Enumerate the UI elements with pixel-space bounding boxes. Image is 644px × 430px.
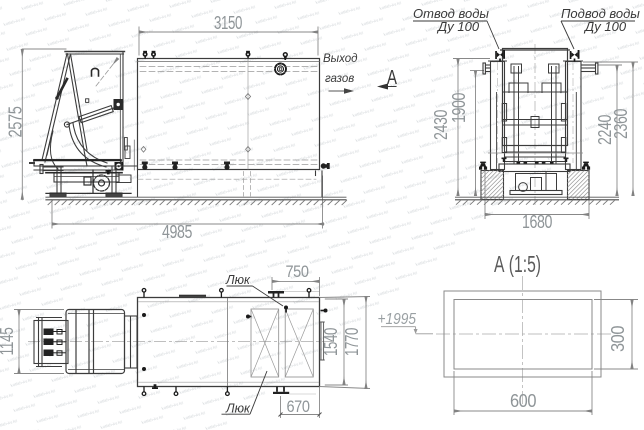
- svg-text:kotlah-kv.kz: kotlah-kv.kz: [355, 132, 378, 143]
- svg-text:kotlah-kv.kz: kotlah-kv.kz: [276, 167, 299, 178]
- svg-text:kotlah-kv.kz: kotlah-kv.kz: [74, 383, 97, 394]
- svg-text:kotlah-kv.kz: kotlah-kv.kz: [427, 190, 450, 201]
- svg-text:kotlah-kv.kz: kotlah-kv.kz: [203, 252, 226, 263]
- svg-text:kotlah-kv.kz: kotlah-kv.kz: [339, 316, 362, 327]
- svg-text:kotlah-kv.kz: kotlah-kv.kz: [195, 34, 218, 45]
- svg-text:kotlah-kv.kz: kotlah-kv.kz: [36, 413, 59, 424]
- svg-text:kotlah-kv.kz: kotlah-kv.kz: [0, 224, 12, 235]
- svg-text:kotlah-kv.kz: kotlah-kv.kz: [59, 424, 82, 430]
- svg-text:kotlah-kv.kz: kotlah-kv.kz: [131, 28, 154, 39]
- svg-text:kotlah-kv.kz: kotlah-kv.kz: [0, 418, 18, 429]
- svg-text:kotlah-kv.kz: kotlah-kv.kz: [188, 293, 211, 304]
- svg-text:kotlah-kv.kz: kotlah-kv.kz: [285, 76, 308, 87]
- svg-text:kotlah-kv.kz: kotlah-kv.kz: [57, 256, 80, 267]
- svg-text:kotlah-kv.kz: kotlah-kv.kz: [155, 206, 178, 217]
- svg-text:kotlah-kv.kz: kotlah-kv.kz: [0, 316, 4, 327]
- svg-text:kotlah-kv.kz: kotlah-kv.kz: [100, 419, 123, 430]
- svg-text:kotlah-kv.kz: kotlah-kv.kz: [309, 254, 332, 265]
- svg-text:kotlah-kv.kz: kotlah-kv.kz: [509, 180, 532, 191]
- svg-text:kotlah-kv.kz: kotlah-kv.kz: [47, 36, 70, 47]
- svg-text:kotlah-kv.kz: kotlah-kv.kz: [217, 44, 240, 55]
- svg-text:kotlah-kv.kz: kotlah-kv.kz: [195, 344, 218, 355]
- svg-text:kotlah-kv.kz: kotlah-kv.kz: [97, 394, 120, 405]
- svg-text:kotlah-kv.kz: kotlah-kv.kz: [243, 390, 266, 401]
- svg-text:kotlah-kv.kz: kotlah-kv.kz: [160, 89, 183, 100]
- svg-text:kotlah-kv.kz: kotlah-kv.kz: [265, 90, 288, 101]
- svg-text:kotlah-kv.kz: kotlah-kv.kz: [352, 107, 375, 118]
- svg-text:kotlah-kv.kz: kotlah-kv.kz: [568, 0, 591, 4]
- svg-text:kotlah-kv.kz: kotlah-kv.kz: [181, 242, 204, 253]
- svg-text:kotlah-kv.kz: kotlah-kv.kz: [305, 228, 328, 239]
- svg-text:kotlah-kv.kz: kotlah-kv.kz: [214, 329, 237, 340]
- svg-text:kotlah-kv.kz: kotlah-kv.kz: [397, 128, 420, 139]
- svg-text:kotlah-kv.kz: kotlah-kv.kz: [357, 0, 380, 1]
- svg-text:kotlah-kv.kz: kotlah-kv.kz: [143, 272, 166, 283]
- svg-text:1540: 1540: [321, 328, 341, 356]
- svg-text:kotlah-kv.kz: kotlah-kv.kz: [281, 360, 304, 371]
- svg-text:2430: 2430: [431, 110, 451, 140]
- svg-text:kotlah-kv.kz: kotlah-kv.kz: [381, 168, 404, 179]
- svg-text:kotlah-kv.kz: kotlah-kv.kz: [167, 140, 190, 151]
- svg-text:kotlah-kv.kz: kotlah-kv.kz: [295, 152, 318, 163]
- svg-text:1900: 1900: [449, 93, 469, 123]
- svg-text:kotlah-kv.kz: kotlah-kv.kz: [453, 226, 476, 237]
- svg-text:kotlah-kv.kz: kotlah-kv.kz: [89, 342, 112, 353]
- svg-text:kotlah-kv.kz: kotlah-kv.kz: [165, 282, 188, 293]
- svg-text:kotlah-kv.kz: kotlah-kv.kz: [480, 119, 503, 130]
- svg-text:3150: 3150: [214, 13, 242, 33]
- svg-text:kotlah-kv.kz: kotlah-kv.kz: [0, 198, 8, 209]
- svg-text:kotlah-kv.kz: kotlah-kv.kz: [274, 0, 297, 10]
- svg-text:kotlah-kv.kz: kotlah-kv.kz: [299, 178, 322, 189]
- svg-text:kotlah-kv.kz: kotlah-kv.kz: [29, 52, 52, 63]
- svg-text:kotlah-kv.kz: kotlah-kv.kz: [238, 197, 261, 208]
- svg-text:kotlah-kv.kz: kotlah-kv.kz: [366, 209, 389, 220]
- svg-text:kotlah-kv.kz: kotlah-kv.kz: [393, 102, 416, 113]
- svg-text:kotlah-kv.kz: kotlah-kv.kz: [151, 180, 174, 191]
- svg-text:kotlah-kv.kz: kotlah-kv.kz: [115, 68, 138, 79]
- svg-text:kotlah-kv.kz: kotlah-kv.kz: [0, 56, 10, 67]
- svg-text:kotlah-kv.kz: kotlah-kv.kz: [405, 36, 428, 47]
- svg-text:1770: 1770: [342, 328, 362, 356]
- svg-text:kotlah-kv.kz: kotlah-kv.kz: [205, 110, 228, 121]
- svg-text:kotlah-kv.kz: kotlah-kv.kz: [113, 210, 136, 221]
- svg-text:kotlah-kv.kz: kotlah-kv.kz: [137, 78, 160, 89]
- svg-text:kotlah-kv.kz: kotlah-kv.kz: [413, 88, 436, 99]
- svg-text:kotlah-kv.kz: kotlah-kv.kz: [369, 234, 392, 245]
- svg-text:kotlah-kv.kz: kotlah-kv.kz: [245, 248, 268, 259]
- svg-text:kotlah-kv.kz: kotlah-kv.kz: [157, 64, 180, 75]
- svg-text:kotlah-kv.kz: kotlah-kv.kz: [138, 389, 161, 400]
- svg-text:kotlah-kv.kz: kotlah-kv.kz: [91, 200, 114, 211]
- svg-text:kotlah-kv.kz: kotlah-kv.kz: [392, 245, 415, 256]
- svg-text:kotlah-kv.kz: kotlah-kv.kz: [377, 286, 400, 297]
- svg-text:kotlah-kv.kz: kotlah-kv.kz: [25, 26, 48, 37]
- svg-text:kotlah-kv.kz: kotlah-kv.kz: [185, 268, 208, 279]
- svg-text:kotlah-kv.kz: kotlah-kv.kz: [315, 0, 338, 5]
- svg-text:kotlah-kv.kz: kotlah-kv.kz: [199, 370, 222, 381]
- svg-text:kotlah-kv.kz: kotlah-kv.kz: [149, 12, 172, 23]
- svg-text:kotlah-kv.kz: kotlah-kv.kz: [357, 300, 380, 311]
- svg-text:kotlah-kv.kz: kotlah-kv.kz: [186, 125, 209, 136]
- svg-text:kotlah-kv.kz: kotlah-kv.kz: [227, 120, 250, 131]
- svg-text:kotlah-kv.kz: kotlah-kv.kz: [297, 10, 320, 21]
- svg-text:kotlah-kv.kz: kotlah-kv.kz: [212, 161, 235, 172]
- svg-text:kotlah-kv.kz: kotlah-kv.kz: [89, 32, 112, 43]
- svg-text:kotlah-kv.kz: kotlah-kv.kz: [20, 143, 43, 154]
- svg-text:kotlah-kv.kz: kotlah-kv.kz: [468, 185, 491, 196]
- svg-text:300: 300: [608, 326, 628, 352]
- svg-text:kotlah-kv.kz: kotlah-kv.kz: [404, 179, 427, 190]
- svg-text:kotlah-kv.kz: kotlah-kv.kz: [291, 126, 314, 137]
- svg-text:kotlah-kv.kz: kotlah-kv.kz: [37, 270, 60, 281]
- svg-text:kotlah-kv.kz: kotlah-kv.kz: [115, 378, 138, 389]
- svg-text:kotlah-kv.kz: kotlah-kv.kz: [0, 0, 22, 1]
- svg-text:kotlah-kv.kz: kotlah-kv.kz: [31, 220, 54, 231]
- svg-text:kotlah-kv.kz: kotlah-kv.kz: [351, 250, 374, 261]
- svg-text:kotlah-kv.kz: kotlah-kv.kz: [0, 148, 2, 159]
- svg-text:kotlah-kv.kz: kotlah-kv.kz: [210, 0, 233, 4]
- svg-text:kotlah-kv.kz: kotlah-kv.kz: [325, 214, 348, 225]
- svg-text:kotlah-kv.kz: kotlah-kv.kz: [122, 119, 145, 130]
- svg-text:kotlah-kv.kz: kotlah-kv.kz: [175, 48, 198, 59]
- svg-text:kotlah-kv.kz: kotlah-kv.kz: [433, 240, 456, 251]
- svg-text:kotlah-kv.kz: kotlah-kv.kz: [359, 158, 382, 169]
- svg-text:kotlah-kv.kz: kotlah-kv.kz: [247, 106, 270, 117]
- svg-text:kotlah-kv.kz: kotlah-kv.kz: [471, 210, 494, 221]
- svg-text:2360: 2360: [611, 109, 631, 139]
- svg-text:kotlah-kv.kz: kotlah-kv.kz: [617, 40, 640, 51]
- svg-text:kotlah-kv.kz: kotlah-kv.kz: [559, 84, 582, 95]
- svg-text:kotlah-kv.kz: kotlah-kv.kz: [157, 374, 180, 385]
- svg-text:kotlah-kv.kz: kotlah-kv.kz: [200, 227, 223, 238]
- svg-text:1145: 1145: [0, 327, 17, 355]
- svg-text:kotlah-kv.kz: kotlah-kv.kz: [183, 100, 206, 111]
- svg-text:kotlah-kv.kz: kotlah-kv.kz: [409, 62, 432, 73]
- svg-text:kotlah-kv.kz: kotlah-kv.kz: [507, 12, 530, 23]
- svg-text:kotlah-kv.kz: kotlah-kv.kz: [261, 208, 284, 219]
- svg-text:kotlah-kv.kz: kotlah-kv.kz: [98, 251, 121, 262]
- svg-text:kotlah-kv.kz: kotlah-kv.kz: [141, 414, 164, 425]
- svg-text:kotlah-kv.kz: kotlah-kv.kz: [250, 131, 273, 142]
- svg-text:kotlah-kv.kz: kotlah-kv.kz: [544, 125, 567, 136]
- svg-text:kotlah-kv.kz: kotlah-kv.kz: [373, 260, 396, 271]
- svg-text:kotlah-kv.kz: kotlah-kv.kz: [63, 0, 86, 7]
- svg-text:kotlah-kv.kz: kotlah-kv.kz: [307, 86, 330, 97]
- svg-text:kotlah-kv.kz: kotlah-kv.kz: [239, 54, 262, 65]
- svg-text:kotlah-kv.kz: kotlah-kv.kz: [469, 42, 492, 53]
- svg-text:kotlah-kv.kz: kotlah-kv.kz: [341, 30, 364, 41]
- svg-text:kotlah-kv.kz: kotlah-kv.kz: [518, 89, 541, 100]
- svg-text:kotlah-kv.kz: kotlah-kv.kz: [58, 113, 81, 124]
- svg-text:kotlah-kv.kz: kotlah-kv.kz: [428, 47, 451, 58]
- svg-text:kotlah-kv.kz: kotlah-kv.kz: [1, 158, 24, 169]
- svg-text:kotlah-kv.kz: kotlah-kv.kz: [541, 100, 564, 111]
- svg-text:1680: 1680: [522, 212, 552, 232]
- svg-text:kotlah-kv.kz: kotlah-kv.kz: [0, 392, 14, 403]
- svg-text:kotlah-kv.kz: kotlah-kv.kz: [135, 364, 158, 375]
- svg-text:kotlah-kv.kz: kotlah-kv.kz: [231, 146, 254, 157]
- svg-text:kotlah-kv.kz: kotlah-kv.kz: [193, 176, 216, 187]
- svg-text:kotlah-kv.kz: kotlah-kv.kz: [264, 233, 287, 244]
- svg-text:kotlah-kv.kz: kotlah-kv.kz: [93, 58, 116, 69]
- svg-text:kotlah-kv.kz: kotlah-kv.kz: [10, 377, 33, 388]
- svg-text:kotlah-kv.kz: kotlah-kv.kz: [21, 0, 44, 11]
- svg-text:kotlah-kv.kz: kotlah-kv.kz: [442, 149, 465, 160]
- svg-text:kotlah-kv.kz: kotlah-kv.kz: [461, 134, 484, 145]
- svg-text:kotlah-kv.kz: kotlah-kv.kz: [273, 142, 296, 153]
- svg-text:kotlah-kv.kz: kotlah-kv.kz: [257, 182, 280, 193]
- svg-text:kotlah-kv.kz: kotlah-kv.kz: [347, 224, 370, 235]
- svg-text:kotlah-kv.kz: kotlah-kv.kz: [379, 0, 402, 11]
- svg-text:kotlah-kv.kz: kotlah-kv.kz: [85, 6, 108, 17]
- svg-text:kotlah-kv.kz: kotlah-kv.kz: [55, 398, 78, 409]
- svg-text:kotlah-kv.kz: kotlah-kv.kz: [153, 348, 176, 359]
- svg-text:kotlah-kv.kz: kotlah-kv.kz: [252, 299, 275, 310]
- svg-text:kotlah-kv.kz: kotlah-kv.kz: [340, 173, 363, 184]
- svg-text:kotlah-kv.kz: kotlah-kv.kz: [109, 328, 132, 339]
- svg-text:kotlah-kv.kz: kotlah-kv.kz: [431, 72, 454, 83]
- svg-text:kotlah-kv.kz: kotlah-kv.kz: [9, 66, 32, 77]
- svg-text:kotlah-kv.kz: kotlah-kv.kz: [243, 80, 266, 91]
- svg-text:kotlah-kv.kz: kotlah-kv.kz: [567, 136, 590, 147]
- svg-text:kotlah-kv.kz: kotlah-kv.kz: [582, 95, 605, 106]
- svg-text:kotlah-kv.kz: kotlah-kv.kz: [139, 246, 162, 257]
- svg-text:kotlah-kv.kz: kotlah-kv.kz: [217, 354, 240, 365]
- svg-text:kotlah-kv.kz: kotlah-kv.kz: [179, 384, 202, 395]
- svg-text:kotlah-kv.kz: kotlah-kv.kz: [223, 238, 246, 249]
- svg-text:kotlah-kv.kz: kotlah-kv.kz: [169, 308, 192, 319]
- svg-text:kotlah-kv.kz: kotlah-kv.kz: [189, 150, 212, 161]
- svg-text:kotlah-kv.kz: kotlah-kv.kz: [0, 173, 5, 184]
- svg-text:А (1:5): А (1:5): [494, 251, 541, 277]
- svg-text:kotlah-kv.kz: kotlah-kv.kz: [205, 420, 228, 430]
- svg-text:kotlah-kv.kz: kotlah-kv.kz: [387, 52, 410, 63]
- svg-text:kotlah-kv.kz: kotlah-kv.kz: [511, 38, 534, 49]
- svg-text:670: 670: [287, 397, 310, 416]
- svg-text:kotlah-kv.kz: kotlah-kv.kz: [354, 275, 377, 286]
- svg-text:kotlah-kv.kz: kotlah-kv.kz: [277, 24, 300, 35]
- svg-text:kotlah-kv.kz: kotlah-kv.kz: [6, 41, 29, 52]
- svg-text:kotlah-kv.kz: kotlah-kv.kz: [635, 24, 644, 35]
- svg-text:kotlah-kv.kz: kotlah-kv.kz: [41, 296, 64, 307]
- svg-text:kotlah-kv.kz: kotlah-kv.kz: [219, 212, 242, 223]
- svg-text:kotlah-kv.kz: kotlah-kv.kz: [269, 116, 292, 127]
- svg-text:kotlah-kv.kz: kotlah-kv.kz: [333, 122, 356, 133]
- svg-text:kotlah-kv.kz: kotlah-kv.kz: [411, 230, 434, 241]
- svg-text:kotlah-kv.kz: kotlah-kv.kz: [364, 41, 387, 52]
- svg-text:kotlah-kv.kz: kotlah-kv.kz: [385, 194, 408, 205]
- svg-text:kotlah-kv.kz: kotlah-kv.kz: [401, 154, 424, 165]
- svg-text:kotlah-kv.kz: kotlah-kv.kz: [67, 22, 90, 33]
- svg-text:Люк: Люк: [225, 402, 251, 416]
- svg-text:kotlah-kv.kz: kotlah-kv.kz: [150, 323, 173, 334]
- svg-text:kotlah-kv.kz: kotlah-kv.kz: [423, 164, 446, 175]
- svg-text:600: 600: [510, 391, 536, 411]
- svg-text:kotlah-kv.kz: kotlah-kv.kz: [371, 92, 394, 103]
- svg-text:kotlah-kv.kz: kotlah-kv.kz: [329, 96, 352, 107]
- svg-text:kotlah-kv.kz: kotlah-kv.kz: [169, 0, 192, 9]
- svg-text:kotlah-kv.kz: kotlah-kv.kz: [255, 14, 278, 25]
- svg-text:kotlah-kv.kz: kotlah-kv.kz: [34, 245, 57, 256]
- svg-text:+1995: +1995: [378, 311, 417, 328]
- svg-text:kotlah-kv.kz: kotlah-kv.kz: [33, 388, 56, 399]
- svg-text:kotlah-kv.kz: kotlah-kv.kz: [0, 250, 16, 261]
- svg-text:Люк: Люк: [225, 273, 251, 287]
- svg-text:kotlah-kv.kz: kotlah-kv.kz: [0, 275, 19, 286]
- svg-text:kotlah-kv.kz: kotlah-kv.kz: [375, 118, 398, 129]
- svg-text:kotlah-kv.kz: kotlah-kv.kz: [597, 54, 620, 65]
- svg-text:kotlah-kv.kz: kotlah-kv.kz: [215, 186, 238, 197]
- svg-text:kotlah-kv.kz: kotlah-kv.kz: [553, 34, 576, 45]
- svg-text:kotlah-kv.kz: kotlah-kv.kz: [0, 366, 10, 377]
- svg-text:kotlah-kv.kz: kotlah-kv.kz: [77, 408, 100, 419]
- svg-text:kotlah-kv.kz: kotlah-kv.kz: [253, 156, 276, 167]
- svg-text:kotlah-kv.kz: kotlah-kv.kz: [11, 234, 34, 245]
- svg-text:kotlah-kv.kz: kotlah-kv.kz: [337, 148, 360, 159]
- svg-text:kotlah-kv.kz: kotlah-kv.kz: [263, 376, 286, 387]
- svg-text:kotlah-kv.kz: kotlah-kv.kz: [73, 72, 96, 83]
- svg-text:kotlah-kv.kz: kotlah-kv.kz: [430, 215, 453, 226]
- svg-text:kotlah-kv.kz: kotlah-kv.kz: [145, 130, 168, 141]
- svg-text:kotlah-kv.kz: kotlah-kv.kz: [119, 404, 142, 415]
- svg-text:kotlah-kv.kz: kotlah-kv.kz: [395, 270, 418, 281]
- svg-text:kotlah-kv.kz: kotlah-kv.kz: [179, 74, 202, 85]
- svg-text:kotlah-kv.kz: kotlah-kv.kz: [211, 304, 234, 315]
- svg-text:kotlah-kv.kz: kotlah-kv.kz: [463, 0, 486, 3]
- svg-text:kotlah-kv.kz: kotlah-kv.kz: [283, 218, 306, 229]
- svg-text:kotlah-kv.kz: kotlah-kv.kz: [79, 266, 102, 277]
- svg-text:kotlah-kv.kz: kotlah-kv.kz: [162, 257, 185, 268]
- svg-text:kotlah-kv.kz: kotlah-kv.kz: [198, 59, 221, 70]
- svg-text:kotlah-kv.kz: kotlah-kv.kz: [415, 256, 438, 267]
- svg-text:kotlah-kv.kz: kotlah-kv.kz: [147, 298, 170, 309]
- svg-text:kotlah-kv.kz: kotlah-kv.kz: [105, 0, 128, 3]
- svg-text:kotlah-kv.kz: kotlah-kv.kz: [361, 16, 384, 27]
- svg-text:750: 750: [286, 262, 309, 281]
- svg-text:2575: 2575: [6, 106, 26, 137]
- svg-text:kotlah-kv.kz: kotlah-kv.kz: [287, 244, 310, 255]
- svg-text:газов: газов: [325, 73, 354, 85]
- svg-text:kotlah-kv.kz: kotlah-kv.kz: [5, 184, 28, 195]
- svg-text:kotlah-kv.kz: kotlah-kv.kz: [527, 0, 550, 9]
- svg-text:kotlah-kv.kz: kotlah-kv.kz: [176, 359, 199, 370]
- svg-text:kotlah-kv.kz: kotlah-kv.kz: [389, 220, 412, 231]
- svg-text:Выход: Выход: [323, 53, 358, 65]
- svg-text:kotlah-kv.kz: kotlah-kv.kz: [13, 402, 36, 413]
- svg-text:kotlah-kv.kz: kotlah-kv.kz: [95, 226, 118, 237]
- svg-text:kotlah-kv.kz: kotlah-kv.kz: [164, 425, 187, 430]
- svg-text:kotlah-kv.kz: kotlah-kv.kz: [96, 83, 119, 94]
- svg-text:kotlah-kv.kz: kotlah-kv.kz: [224, 95, 247, 106]
- svg-text:kotlah-kv.kz: kotlah-kv.kz: [209, 136, 232, 147]
- svg-text:kotlah-kv.kz: kotlah-kv.kz: [60, 281, 83, 292]
- svg-text:kotlah-kv.kz: kotlah-kv.kz: [131, 338, 154, 349]
- svg-text:kotlah-kv.kz: kotlah-kv.kz: [53, 230, 76, 241]
- svg-text:kotlah-kv.kz: kotlah-kv.kz: [44, 11, 67, 22]
- svg-text:kotlah-kv.kz: kotlah-kv.kz: [300, 35, 323, 46]
- svg-text:kotlah-kv.kz: kotlah-kv.kz: [363, 184, 386, 195]
- svg-text:kotlah-kv.kz: kotlah-kv.kz: [32, 77, 55, 88]
- svg-text:kotlah-kv.kz: kotlah-kv.kz: [221, 380, 244, 391]
- svg-text:kotlah-kv.kz: kotlah-kv.kz: [319, 20, 342, 31]
- svg-text:kotlah-kv.kz: kotlah-kv.kz: [153, 38, 176, 49]
- svg-text:kotlah-kv.kz: kotlah-kv.kz: [108, 17, 131, 28]
- svg-text:kotlah-kv.kz: kotlah-kv.kz: [0, 5, 3, 16]
- svg-text:kotlah-kv.kz: kotlah-kv.kz: [620, 65, 643, 76]
- svg-text:kotlah-kv.kz: kotlah-kv.kz: [191, 318, 214, 329]
- svg-text:А: А: [387, 66, 397, 89]
- svg-text:kotlah-kv.kz: kotlah-kv.kz: [311, 112, 334, 123]
- svg-text:kotlah-kv.kz: kotlah-kv.kz: [19, 286, 42, 297]
- svg-text:kotlah-kv.kz: kotlah-kv.kz: [71, 358, 94, 369]
- svg-text:kotlah-kv.kz: kotlah-kv.kz: [3, 16, 26, 27]
- svg-text:kotlah-kv.kz: kotlah-kv.kz: [202, 395, 225, 406]
- svg-text:kotlah-kv.kz: kotlah-kv.kz: [445, 174, 468, 185]
- svg-text:kotlah-kv.kz: kotlah-kv.kz: [173, 334, 196, 345]
- svg-text:kotlah-kv.kz: kotlah-kv.kz: [407, 204, 430, 215]
- svg-text:kotlah-kv.kz: kotlah-kv.kz: [136, 221, 159, 232]
- svg-text:kotlah-kv.kz: kotlah-kv.kz: [0, 30, 6, 41]
- svg-text:kotlah-kv.kz: kotlah-kv.kz: [383, 26, 406, 37]
- svg-text:kotlah-kv.kz: kotlah-kv.kz: [127, 2, 150, 13]
- svg-text:kotlah-kv.kz: kotlah-kv.kz: [8, 209, 31, 220]
- svg-text:kotlah-kv.kz: kotlah-kv.kz: [235, 172, 258, 183]
- svg-text:kotlah-kv.kz: kotlah-kv.kz: [197, 202, 220, 213]
- svg-text:4985: 4985: [162, 222, 192, 242]
- svg-text:kotlah-kv.kz: kotlah-kv.kz: [249, 274, 272, 285]
- svg-text:kotlah-kv.kz: kotlah-kv.kz: [314, 137, 337, 148]
- svg-text:kotlah-kv.kz: kotlah-kv.kz: [112, 353, 135, 364]
- svg-text:kotlah-kv.kz: kotlah-kv.kz: [259, 40, 282, 51]
- svg-text:kotlah-kv.kz: kotlah-kv.kz: [278, 335, 301, 346]
- svg-text:kotlah-kv.kz: kotlah-kv.kz: [191, 8, 214, 19]
- svg-text:kotlah-kv.kz: kotlah-kv.kz: [83, 292, 106, 303]
- svg-text:kotlah-kv.kz: kotlah-kv.kz: [288, 101, 311, 112]
- svg-text:kotlah-kv.kz: kotlah-kv.kz: [163, 114, 186, 125]
- svg-text:kotlah-kv.kz: kotlah-kv.kz: [103, 134, 126, 145]
- svg-text:kotlah-kv.kz: kotlah-kv.kz: [328, 239, 351, 250]
- svg-text:kotlah-kv.kz: kotlah-kv.kz: [338, 5, 361, 16]
- svg-text:kotlah-kv.kz: kotlah-kv.kz: [141, 104, 164, 115]
- svg-text:kotlah-kv.kz: kotlah-kv.kz: [601, 80, 624, 91]
- svg-text:kotlah-kv.kz: kotlah-kv.kz: [233, 314, 256, 325]
- svg-text:kotlah-kv.kz: kotlah-kv.kz: [15, 260, 38, 271]
- svg-text:kotlah-kv.kz: kotlah-kv.kz: [639, 50, 644, 61]
- svg-text:kotlah-kv.kz: kotlah-kv.kz: [449, 200, 472, 211]
- svg-text:kotlah-kv.kz: kotlah-kv.kz: [451, 58, 474, 69]
- svg-text:kotlah-kv.kz: kotlah-kv.kz: [75, 240, 98, 251]
- svg-text:kotlah-kv.kz: kotlah-kv.kz: [255, 324, 278, 335]
- svg-text:kotlah-kv.kz: kotlah-kv.kz: [13, 92, 36, 103]
- svg-text:kotlah-kv.kz: kotlah-kv.kz: [117, 236, 140, 247]
- svg-text:kotlah-kv.kz: kotlah-kv.kz: [201, 84, 224, 95]
- svg-text:kotlah-kv.kz: kotlah-kv.kz: [378, 143, 401, 154]
- svg-text:kotlah-kv.kz: kotlah-kv.kz: [331, 264, 354, 275]
- svg-text:kotlah-kv.kz: kotlah-kv.kz: [121, 262, 144, 273]
- svg-text:kotlah-kv.kz: kotlah-kv.kz: [293, 294, 316, 305]
- svg-text:kotlah-kv.kz: kotlah-kv.kz: [70, 47, 93, 58]
- svg-text:kotlah-kv.kz: kotlah-kv.kz: [183, 410, 206, 421]
- svg-text:kotlah-kv.kz: kotlah-kv.kz: [454, 83, 477, 94]
- svg-text:kotlah-kv.kz: kotlah-kv.kz: [530, 23, 553, 34]
- svg-text:kotlah-kv.kz: kotlah-kv.kz: [101, 276, 124, 287]
- svg-text:kotlah-kv.kz: kotlah-kv.kz: [77, 98, 100, 109]
- svg-text:kotlah-kv.kz: kotlah-kv.kz: [161, 400, 184, 411]
- svg-text:kotlah-kv.kz: kotlah-kv.kz: [0, 82, 14, 93]
